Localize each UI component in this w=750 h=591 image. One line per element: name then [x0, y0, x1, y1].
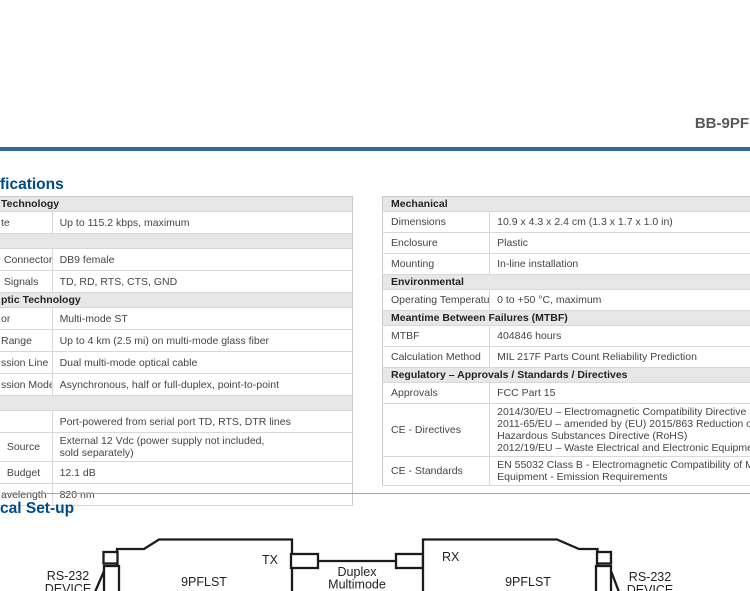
- section-header-label: Regulatory – Approvals / Standards / Dir…: [383, 368, 750, 383]
- spec-row: RangeUp to 4 km (2.5 mi) on multi-mode g…: [0, 330, 353, 352]
- section-header-label: Meantime Between Failures (MTBF): [383, 311, 750, 326]
- section-header-label: [0, 234, 353, 249]
- right-device-label-line1: RS-232: [629, 570, 671, 584]
- spec-label: or: [0, 308, 52, 330]
- spec-value: DB9 female: [52, 249, 352, 271]
- specifications-heading: fications: [0, 176, 64, 194]
- spec-label: Range: [0, 330, 52, 352]
- spec-value: MIL 217F Parts Count Reliability Predict…: [490, 347, 750, 368]
- rx-label: RX: [442, 550, 460, 564]
- spec-row: ConnectorDB9 female: [0, 249, 353, 271]
- section-header-label: Mechanical: [383, 197, 750, 212]
- spec-label: CE - Standards: [383, 457, 490, 486]
- spec-label: Enclosure: [383, 233, 490, 254]
- spec-row: SourceExternal 12 Vdc (power supply not …: [0, 433, 353, 462]
- spec-label: CE - Directives: [383, 404, 490, 457]
- spec-label: Approvals: [383, 383, 490, 404]
- section-divider: [4, 493, 750, 494]
- section-header-label: [0, 396, 353, 411]
- spec-section-row: [0, 396, 353, 411]
- right-device-label-line2: DEVICE: [627, 583, 674, 591]
- fiber-label-line2: Multimode: [328, 578, 386, 591]
- spec-label: te: [0, 212, 52, 234]
- right-db9-shell-line: [611, 571, 619, 591]
- spec-table-right: MechanicalDimensions10.9 x 4.3 x 2.4 cm …: [382, 196, 750, 486]
- spec-label: Source: [0, 433, 52, 462]
- spec-label: Connector: [0, 249, 52, 271]
- spec-row: Budget12.1 dB: [0, 462, 353, 484]
- spec-section-row: [0, 234, 353, 249]
- spec-row: CE - StandardsEN 55032 Class B - Electro…: [383, 457, 750, 486]
- spec-row: ssion LineDual multi-mode optical cable: [0, 352, 353, 374]
- spec-section-row: ptic Technology: [0, 293, 353, 308]
- spec-label: MTBF: [383, 326, 490, 347]
- spec-value: External 12 Vdc (power supply not includ…: [52, 433, 352, 462]
- spec-table-left: TechnologyteUp to 115.2 kbps, maximum Co…: [0, 196, 353, 506]
- spec-value: Multi-mode ST: [52, 308, 352, 330]
- spec-value: TD, RD, RTS, CTS, GND: [52, 271, 352, 293]
- spec-label: Operating Temperature: [383, 290, 490, 311]
- left-db9-connector: [104, 566, 119, 591]
- spec-section-row: Regulatory – Approvals / Standards / Dir…: [383, 368, 750, 383]
- rx-port: [396, 554, 423, 568]
- section-header-label: Environmental: [383, 275, 750, 290]
- spec-value: 2014/30/EU – Electromagnetic Compatibili…: [490, 404, 750, 457]
- spec-row: EnclosurePlastic: [383, 233, 750, 254]
- spec-value: Up to 4 km (2.5 mi) on multi-mode glass …: [52, 330, 352, 352]
- spec-label: [0, 411, 52, 433]
- spec-row: orMulti-mode ST: [0, 308, 353, 330]
- spec-section-row: Mechanical: [383, 197, 750, 212]
- typical-setup-heading: cal Set-up: [0, 500, 74, 518]
- spec-value: Plastic: [490, 233, 750, 254]
- spec-row: CE - Directives2014/30/EU – Electromagne…: [383, 404, 750, 457]
- section-header-label: ptic Technology: [0, 293, 353, 308]
- spec-label: Signals: [0, 271, 52, 293]
- spec-value: Dual multi-mode optical cable: [52, 352, 352, 374]
- spec-row: Operating Temperature0 to +50 °C, maximu…: [383, 290, 750, 311]
- spec-value: 10.9 x 4.3 x 2.4 cm (1.3 x 1.7 x 1.0 in): [490, 212, 750, 233]
- left-device-label-line1: RS-232: [47, 569, 89, 583]
- spec-label: Mounting: [383, 254, 490, 275]
- spec-label: ssion Mode: [0, 374, 52, 396]
- spec-section-row: Meantime Between Failures (MTBF): [383, 311, 750, 326]
- left-db9-notch: [104, 552, 118, 564]
- spec-value: In-line installation: [490, 254, 750, 275]
- spec-section-row: Environmental: [383, 275, 750, 290]
- spec-value: Port-powered from serial port TD, RTS, D…: [52, 411, 352, 433]
- spec-value: 12.1 dB: [52, 462, 352, 484]
- spec-section-row: Technology: [0, 197, 353, 212]
- spec-value: Asynchronous, half or full-duplex, point…: [52, 374, 352, 396]
- spec-value: FCC Part 15: [490, 383, 750, 404]
- spec-row: Dimensions10.9 x 4.3 x 2.4 cm (1.3 x 1.7…: [383, 212, 750, 233]
- datasheet-page: BB-9PF fications TechnologyteUp to 115.2…: [0, 0, 750, 591]
- spec-label: Calculation Method: [383, 347, 490, 368]
- left-converter-label: 9PFLST: [181, 575, 227, 589]
- tx-label: TX: [262, 553, 279, 567]
- spec-label: Budget: [0, 462, 52, 484]
- spec-value: 0 to +50 °C, maximum: [490, 290, 750, 311]
- spec-row: ApprovalsFCC Part 15: [383, 383, 750, 404]
- left-db9-shell-line: [95, 571, 104, 591]
- tx-port: [291, 554, 318, 568]
- product-title: BB-9PF: [695, 115, 749, 132]
- spec-row: teUp to 115.2 kbps, maximum: [0, 212, 353, 234]
- left-device-label-line2: DEVICE: [45, 582, 92, 591]
- spec-label: Dimensions: [383, 212, 490, 233]
- spec-value: Up to 115.2 kbps, maximum: [52, 212, 352, 234]
- spec-value: 820 nm: [52, 484, 352, 506]
- spec-row: MTBF404846 hours: [383, 326, 750, 347]
- spec-row: Port-powered from serial port TD, RTS, D…: [0, 411, 353, 433]
- setup-diagram: RS-232 DEVICE 9PFLST TX Duplex Multimode…: [0, 530, 750, 591]
- right-db9-connector: [596, 566, 611, 591]
- spec-value: 404846 hours: [490, 326, 750, 347]
- right-converter-label: 9PFLST: [505, 575, 551, 589]
- spec-row: ssion ModeAsynchronous, half or full-dup…: [0, 374, 353, 396]
- right-db9-notch: [597, 552, 611, 564]
- spec-row: Calculation MethodMIL 217F Parts Count R…: [383, 347, 750, 368]
- spec-row: SignalsTD, RD, RTS, CTS, GND: [0, 271, 353, 293]
- spec-label: ssion Line: [0, 352, 52, 374]
- section-header-label: Technology: [0, 197, 353, 212]
- header-rule: [0, 147, 750, 151]
- spec-row: MountingIn-line installation: [383, 254, 750, 275]
- spec-value: EN 55032 Class B - Electromagnetic Compa…: [490, 457, 750, 486]
